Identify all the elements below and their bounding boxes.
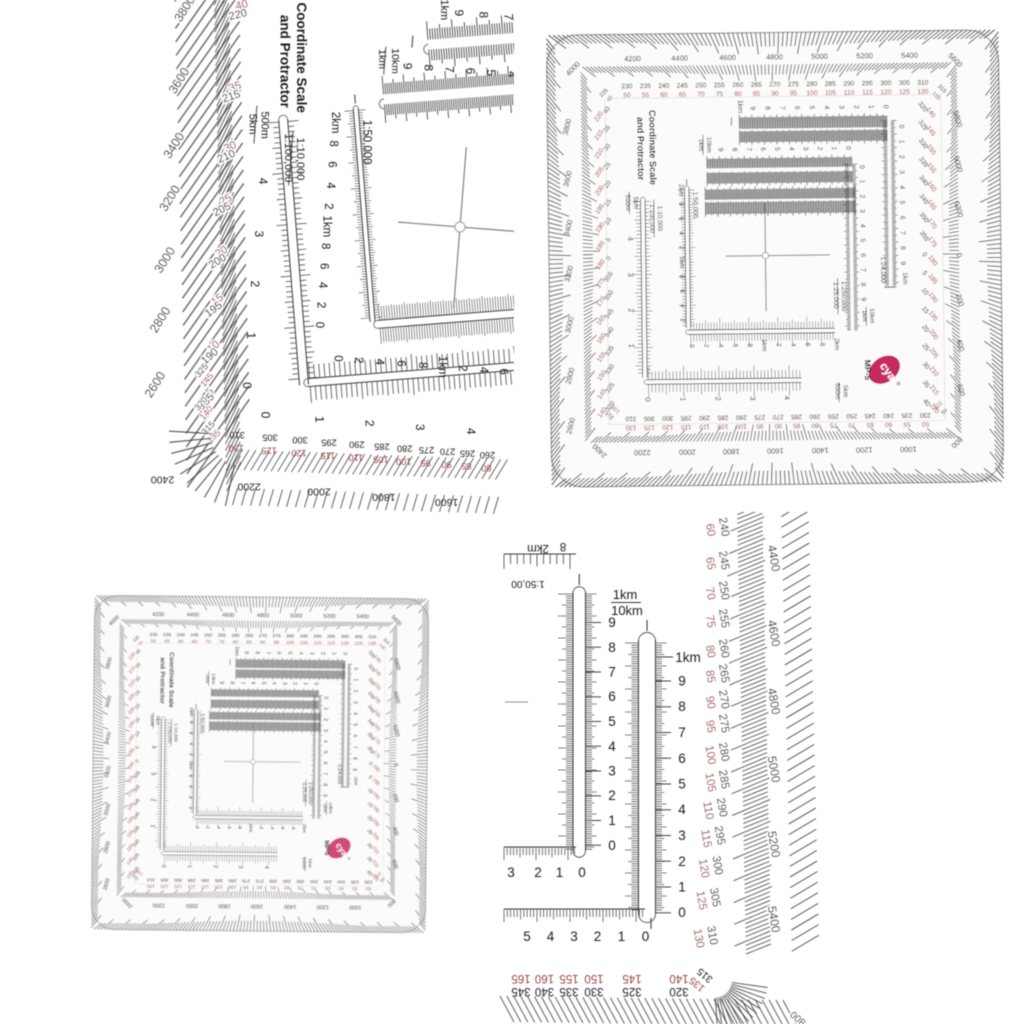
svg-text:6: 6 xyxy=(759,147,766,151)
svg-text:1: 1 xyxy=(678,397,687,401)
svg-text:2km: 2km xyxy=(677,184,684,196)
svg-text:0: 0 xyxy=(897,125,904,129)
svg-text:6: 6 xyxy=(326,161,338,167)
svg-text:4: 4 xyxy=(678,802,686,817)
svg-text:310: 310 xyxy=(230,430,245,440)
svg-text:4600: 4600 xyxy=(719,53,736,62)
svg-text:100: 100 xyxy=(736,422,747,429)
svg-text:1: 1 xyxy=(678,880,686,895)
svg-text:230: 230 xyxy=(919,411,930,418)
svg-text:1km: 1km xyxy=(376,49,388,69)
svg-text:8: 8 xyxy=(421,64,435,71)
svg-text:310: 310 xyxy=(625,415,636,422)
svg-text:330: 330 xyxy=(584,985,603,997)
svg-text:8: 8 xyxy=(818,343,825,347)
svg-text:60: 60 xyxy=(703,523,717,538)
svg-text:7: 7 xyxy=(502,14,516,21)
svg-text:1:50,000: 1:50,000 xyxy=(691,192,698,219)
svg-text:4: 4 xyxy=(608,739,616,754)
svg-text:5: 5 xyxy=(773,147,780,151)
svg-text:7: 7 xyxy=(745,147,752,151)
svg-text:4: 4 xyxy=(626,237,635,241)
svg-text:6: 6 xyxy=(678,751,686,766)
svg-text:1km: 1km xyxy=(861,310,868,322)
svg-text:235: 235 xyxy=(901,411,912,418)
svg-text:3: 3 xyxy=(898,170,905,174)
svg-text:1600: 1600 xyxy=(435,496,459,508)
svg-text:2: 2 xyxy=(248,280,262,287)
svg-text:500m: 500m xyxy=(624,195,631,211)
svg-text:1km: 1km xyxy=(613,587,638,602)
svg-text:1km: 1km xyxy=(675,650,701,665)
svg-text:75: 75 xyxy=(829,421,837,428)
svg-text:310: 310 xyxy=(917,80,928,87)
svg-text:3: 3 xyxy=(748,396,757,400)
svg-text:4: 4 xyxy=(717,344,724,348)
svg-text:4: 4 xyxy=(324,182,336,189)
svg-text:290: 290 xyxy=(699,414,710,421)
svg-text:5: 5 xyxy=(859,238,866,242)
svg-text:275: 275 xyxy=(419,445,434,455)
svg-text:2: 2 xyxy=(858,194,865,198)
svg-text:1: 1 xyxy=(313,416,327,423)
svg-text:55: 55 xyxy=(903,420,911,427)
svg-text:2: 2 xyxy=(816,147,823,151)
svg-text:7: 7 xyxy=(899,231,906,235)
svg-text:295: 295 xyxy=(321,437,336,447)
svg-text:1:10,000: 1:10,000 xyxy=(656,206,663,232)
svg-text:65: 65 xyxy=(703,556,717,571)
svg-text:305: 305 xyxy=(899,80,910,87)
svg-text:5200: 5200 xyxy=(856,51,873,60)
svg-text:9: 9 xyxy=(452,10,466,17)
svg-text:4: 4 xyxy=(859,224,866,228)
svg-text:7: 7 xyxy=(859,268,866,272)
svg-text:245: 245 xyxy=(677,83,688,90)
svg-text:65: 65 xyxy=(866,421,874,428)
svg-text:6: 6 xyxy=(793,106,800,110)
svg-text:130: 130 xyxy=(625,424,636,431)
svg-text:105: 105 xyxy=(717,423,728,430)
svg-text:2: 2 xyxy=(898,155,905,159)
svg-text:8: 8 xyxy=(608,640,616,655)
svg-text:1km: 1km xyxy=(321,215,333,237)
svg-text:2: 2 xyxy=(534,865,542,880)
svg-text:1200: 1200 xyxy=(856,445,873,454)
svg-text:9: 9 xyxy=(749,106,756,110)
svg-text:500m: 500m xyxy=(834,383,841,399)
svg-text:2: 2 xyxy=(362,420,376,427)
svg-text:1:50,00: 1:50,00 xyxy=(511,578,545,589)
svg-text:0: 0 xyxy=(608,838,616,853)
svg-text:2000: 2000 xyxy=(679,447,696,456)
svg-text:2: 2 xyxy=(627,308,636,312)
svg-text:75: 75 xyxy=(703,614,717,629)
svg-text:2: 2 xyxy=(456,365,468,371)
svg-text:290: 290 xyxy=(843,81,854,88)
svg-text:5: 5 xyxy=(608,714,616,729)
svg-text:2: 2 xyxy=(608,788,616,803)
svg-text:240: 240 xyxy=(658,83,669,90)
svg-text:275: 275 xyxy=(754,413,765,420)
svg-text:0: 0 xyxy=(578,865,586,880)
svg-text:140: 140 xyxy=(669,972,688,984)
svg-text:1800: 1800 xyxy=(723,447,740,456)
svg-text:1km: 1km xyxy=(760,339,767,351)
svg-text:10km: 10km xyxy=(868,308,875,323)
svg-text:115: 115 xyxy=(681,423,692,430)
svg-text:1km: 1km xyxy=(678,256,685,268)
svg-text:50: 50 xyxy=(921,420,929,427)
svg-text:2: 2 xyxy=(352,357,364,363)
svg-text:280: 280 xyxy=(397,443,412,453)
svg-text:245: 245 xyxy=(864,412,875,419)
svg-text:280: 280 xyxy=(735,413,746,420)
svg-text:4400: 4400 xyxy=(671,54,688,63)
svg-text:6: 6 xyxy=(804,343,811,347)
svg-text:1:250,000: 1:250,000 xyxy=(840,281,847,312)
svg-text:1km: 1km xyxy=(436,356,448,378)
svg-text:2km: 2km xyxy=(329,112,341,134)
svg-text:265: 265 xyxy=(791,413,802,420)
svg-text:85: 85 xyxy=(793,422,801,429)
svg-text:95: 95 xyxy=(756,422,764,429)
svg-text:5400: 5400 xyxy=(901,51,918,60)
svg-text:8: 8 xyxy=(731,148,738,152)
svg-text:0: 0 xyxy=(882,105,889,109)
svg-text:1:50,000: 1:50,000 xyxy=(360,120,372,165)
svg-text:9: 9 xyxy=(401,63,415,70)
svg-text:5: 5 xyxy=(808,106,815,110)
svg-text:3: 3 xyxy=(507,865,515,880)
svg-text:4: 4 xyxy=(787,147,794,151)
svg-text:2: 2 xyxy=(679,318,686,322)
svg-text:2: 2 xyxy=(322,203,334,209)
svg-text:285: 285 xyxy=(825,81,836,88)
svg-text:120: 120 xyxy=(662,423,673,430)
svg-text:6: 6 xyxy=(463,68,477,75)
svg-text:260: 260 xyxy=(732,82,743,89)
svg-text:305: 305 xyxy=(262,433,277,443)
svg-text:280: 280 xyxy=(806,81,817,88)
svg-text:®: ® xyxy=(896,380,900,387)
svg-text:0: 0 xyxy=(240,382,254,389)
svg-text:4: 4 xyxy=(316,282,328,289)
svg-text:270: 270 xyxy=(440,447,455,457)
svg-text:1km: 1km xyxy=(438,0,450,20)
svg-text:340: 340 xyxy=(535,985,554,997)
svg-text:6: 6 xyxy=(898,216,905,220)
svg-text:2km: 2km xyxy=(527,542,549,554)
svg-text:8: 8 xyxy=(327,140,339,146)
svg-text:2: 2 xyxy=(314,302,326,308)
svg-text:6: 6 xyxy=(677,217,684,221)
svg-text:265: 265 xyxy=(751,82,762,89)
svg-text:6: 6 xyxy=(318,263,330,269)
svg-text:250: 250 xyxy=(846,412,857,419)
svg-text:9: 9 xyxy=(608,615,616,630)
svg-text:0: 0 xyxy=(331,355,343,361)
svg-text:8: 8 xyxy=(899,246,906,250)
svg-text:8: 8 xyxy=(678,275,685,279)
svg-text:8: 8 xyxy=(416,362,428,368)
svg-text:5: 5 xyxy=(898,201,905,205)
svg-text:4: 4 xyxy=(783,396,792,400)
svg-text:295: 295 xyxy=(862,80,873,87)
svg-text:2: 2 xyxy=(703,344,710,348)
svg-text:1: 1 xyxy=(618,929,626,944)
svg-text:2: 2 xyxy=(594,929,602,944)
svg-text:255: 255 xyxy=(827,412,838,419)
svg-text:2: 2 xyxy=(678,246,685,250)
svg-text:90: 90 xyxy=(703,695,717,710)
svg-text:Coordinate Scale: Coordinate Scale xyxy=(294,3,309,114)
svg-text:5: 5 xyxy=(523,929,531,944)
svg-text:285: 285 xyxy=(374,442,389,452)
svg-text:2km: 2km xyxy=(833,338,840,350)
svg-text:1: 1 xyxy=(898,140,905,144)
svg-text:10km: 10km xyxy=(611,603,643,618)
svg-text:3: 3 xyxy=(608,764,616,779)
svg-text:2: 2 xyxy=(714,397,723,401)
svg-text:3: 3 xyxy=(802,147,809,151)
svg-text:80: 80 xyxy=(811,421,819,428)
svg-text:6: 6 xyxy=(608,689,616,704)
svg-text:3: 3 xyxy=(413,424,427,431)
svg-text:5: 5 xyxy=(484,69,498,76)
svg-text:9: 9 xyxy=(678,674,686,689)
svg-text:300: 300 xyxy=(662,414,673,421)
svg-text:10km: 10km xyxy=(705,137,712,153)
svg-text:1800: 1800 xyxy=(372,491,396,503)
svg-text:2200: 2200 xyxy=(634,448,651,457)
svg-text:165: 165 xyxy=(511,972,530,984)
svg-text:4: 4 xyxy=(678,231,685,235)
svg-text:1: 1 xyxy=(867,105,874,109)
svg-text:2200: 2200 xyxy=(237,480,261,492)
svg-text:1:24,000: 1:24,000 xyxy=(879,256,886,283)
svg-text:8: 8 xyxy=(746,343,753,347)
svg-text:4: 4 xyxy=(823,105,830,109)
svg-text:9: 9 xyxy=(899,261,906,265)
svg-text:270: 270 xyxy=(772,413,783,420)
svg-text:7: 7 xyxy=(442,66,456,73)
svg-text:1km: 1km xyxy=(736,100,743,113)
svg-text:320: 320 xyxy=(669,985,688,997)
svg-text:1:10,000: 1:10,000 xyxy=(294,138,306,181)
svg-text:80: 80 xyxy=(703,644,717,659)
svg-text:4: 4 xyxy=(477,367,489,374)
svg-text:1400: 1400 xyxy=(812,446,829,455)
svg-text:7: 7 xyxy=(678,725,686,740)
svg-text:and Protractor: and Protractor xyxy=(635,117,646,181)
svg-text:240: 240 xyxy=(883,412,894,419)
svg-text:5km: 5km xyxy=(632,197,639,209)
svg-text:8: 8 xyxy=(859,283,866,287)
svg-text:4: 4 xyxy=(898,185,905,189)
svg-text:6: 6 xyxy=(395,360,407,366)
svg-text:95: 95 xyxy=(703,719,717,734)
svg-text:0: 0 xyxy=(688,344,695,348)
svg-text:0: 0 xyxy=(642,929,650,944)
svg-text:230: 230 xyxy=(621,83,632,90)
svg-text:70: 70 xyxy=(703,586,717,601)
svg-text:5km: 5km xyxy=(842,385,849,397)
svg-text:and Protractor: and Protractor xyxy=(277,15,292,109)
svg-text:4200: 4200 xyxy=(624,54,641,63)
svg-text:8: 8 xyxy=(764,106,771,110)
svg-text:0: 0 xyxy=(858,165,865,169)
svg-text:125: 125 xyxy=(644,423,655,430)
svg-text:85: 85 xyxy=(703,669,717,684)
svg-text:1: 1 xyxy=(608,813,616,828)
svg-text:4: 4 xyxy=(547,929,555,944)
svg-text:2400: 2400 xyxy=(151,473,175,485)
svg-text:9: 9 xyxy=(859,297,866,301)
svg-text:MP-5: MP-5 xyxy=(863,360,873,381)
svg-text:7: 7 xyxy=(608,665,616,680)
svg-text:9: 9 xyxy=(716,148,723,152)
svg-text:0: 0 xyxy=(678,905,686,920)
svg-text:1: 1 xyxy=(244,332,258,339)
svg-text:260: 260 xyxy=(809,412,820,419)
svg-text:345: 345 xyxy=(511,985,530,997)
svg-text:0: 0 xyxy=(313,322,325,328)
svg-text:6: 6 xyxy=(859,253,866,257)
svg-text:8: 8 xyxy=(677,202,684,206)
svg-text:235: 235 xyxy=(640,83,651,90)
svg-text:4800: 4800 xyxy=(766,52,783,61)
svg-text:300: 300 xyxy=(880,80,891,87)
svg-text:1: 1 xyxy=(556,865,564,880)
svg-text:1: 1 xyxy=(858,180,865,184)
svg-text:6: 6 xyxy=(732,344,739,348)
svg-text:0: 0 xyxy=(259,412,273,419)
svg-text:4: 4 xyxy=(789,343,796,347)
svg-text:4: 4 xyxy=(679,304,686,308)
svg-text:0: 0 xyxy=(643,397,652,401)
svg-text:270: 270 xyxy=(769,81,780,88)
svg-text:260: 260 xyxy=(480,450,495,460)
svg-text:305: 305 xyxy=(643,414,654,421)
svg-text:8: 8 xyxy=(560,540,566,552)
svg-text:Coordinate Scale: Coordinate Scale xyxy=(647,110,658,185)
svg-text:1: 1 xyxy=(830,146,837,150)
svg-text:2: 2 xyxy=(678,854,686,869)
svg-text:8: 8 xyxy=(678,699,686,714)
svg-text:265: 265 xyxy=(460,448,475,458)
svg-text:4: 4 xyxy=(256,178,270,185)
svg-text:335: 335 xyxy=(559,985,578,997)
svg-text:145: 145 xyxy=(622,972,641,984)
svg-text:300: 300 xyxy=(292,435,307,445)
svg-text:60: 60 xyxy=(885,421,893,428)
svg-text:255: 255 xyxy=(714,82,725,89)
svg-text:3: 3 xyxy=(570,929,578,944)
svg-text:7: 7 xyxy=(778,106,785,110)
svg-text:285: 285 xyxy=(717,414,728,421)
svg-text:90: 90 xyxy=(774,422,782,429)
svg-text:4: 4 xyxy=(373,359,385,366)
svg-text:5000: 5000 xyxy=(811,52,828,61)
svg-text:155: 155 xyxy=(559,972,578,984)
svg-text:8: 8 xyxy=(477,12,491,19)
svg-text:6: 6 xyxy=(678,289,685,293)
svg-text:2: 2 xyxy=(852,105,859,109)
svg-text:3: 3 xyxy=(838,105,845,109)
svg-text:325: 325 xyxy=(622,985,641,997)
svg-text:3: 3 xyxy=(858,209,865,213)
svg-text:275: 275 xyxy=(788,81,799,88)
svg-text:110: 110 xyxy=(699,423,710,430)
svg-text:500m: 500m xyxy=(258,111,270,139)
svg-text:250: 250 xyxy=(695,82,706,89)
svg-text:4: 4 xyxy=(464,428,478,435)
svg-text:5: 5 xyxy=(678,777,686,792)
svg-text:295: 295 xyxy=(680,414,691,421)
svg-text:8: 8 xyxy=(319,243,331,249)
svg-text:1km: 1km xyxy=(901,272,908,284)
svg-text:10km: 10km xyxy=(389,48,401,74)
svg-text:70: 70 xyxy=(848,421,856,428)
svg-text:160: 160 xyxy=(535,972,554,984)
svg-text:3: 3 xyxy=(678,828,686,843)
svg-text:6: 6 xyxy=(497,368,509,374)
svg-text:1: 1 xyxy=(627,344,636,348)
svg-text:3: 3 xyxy=(252,231,266,238)
svg-text:290: 290 xyxy=(349,440,364,450)
svg-text:5km: 5km xyxy=(246,114,258,135)
svg-text:1000: 1000 xyxy=(900,445,917,454)
svg-text:0: 0 xyxy=(844,146,851,150)
svg-text:150: 150 xyxy=(584,972,603,984)
svg-text:2: 2 xyxy=(775,343,782,347)
svg-text:1600: 1600 xyxy=(767,446,784,455)
